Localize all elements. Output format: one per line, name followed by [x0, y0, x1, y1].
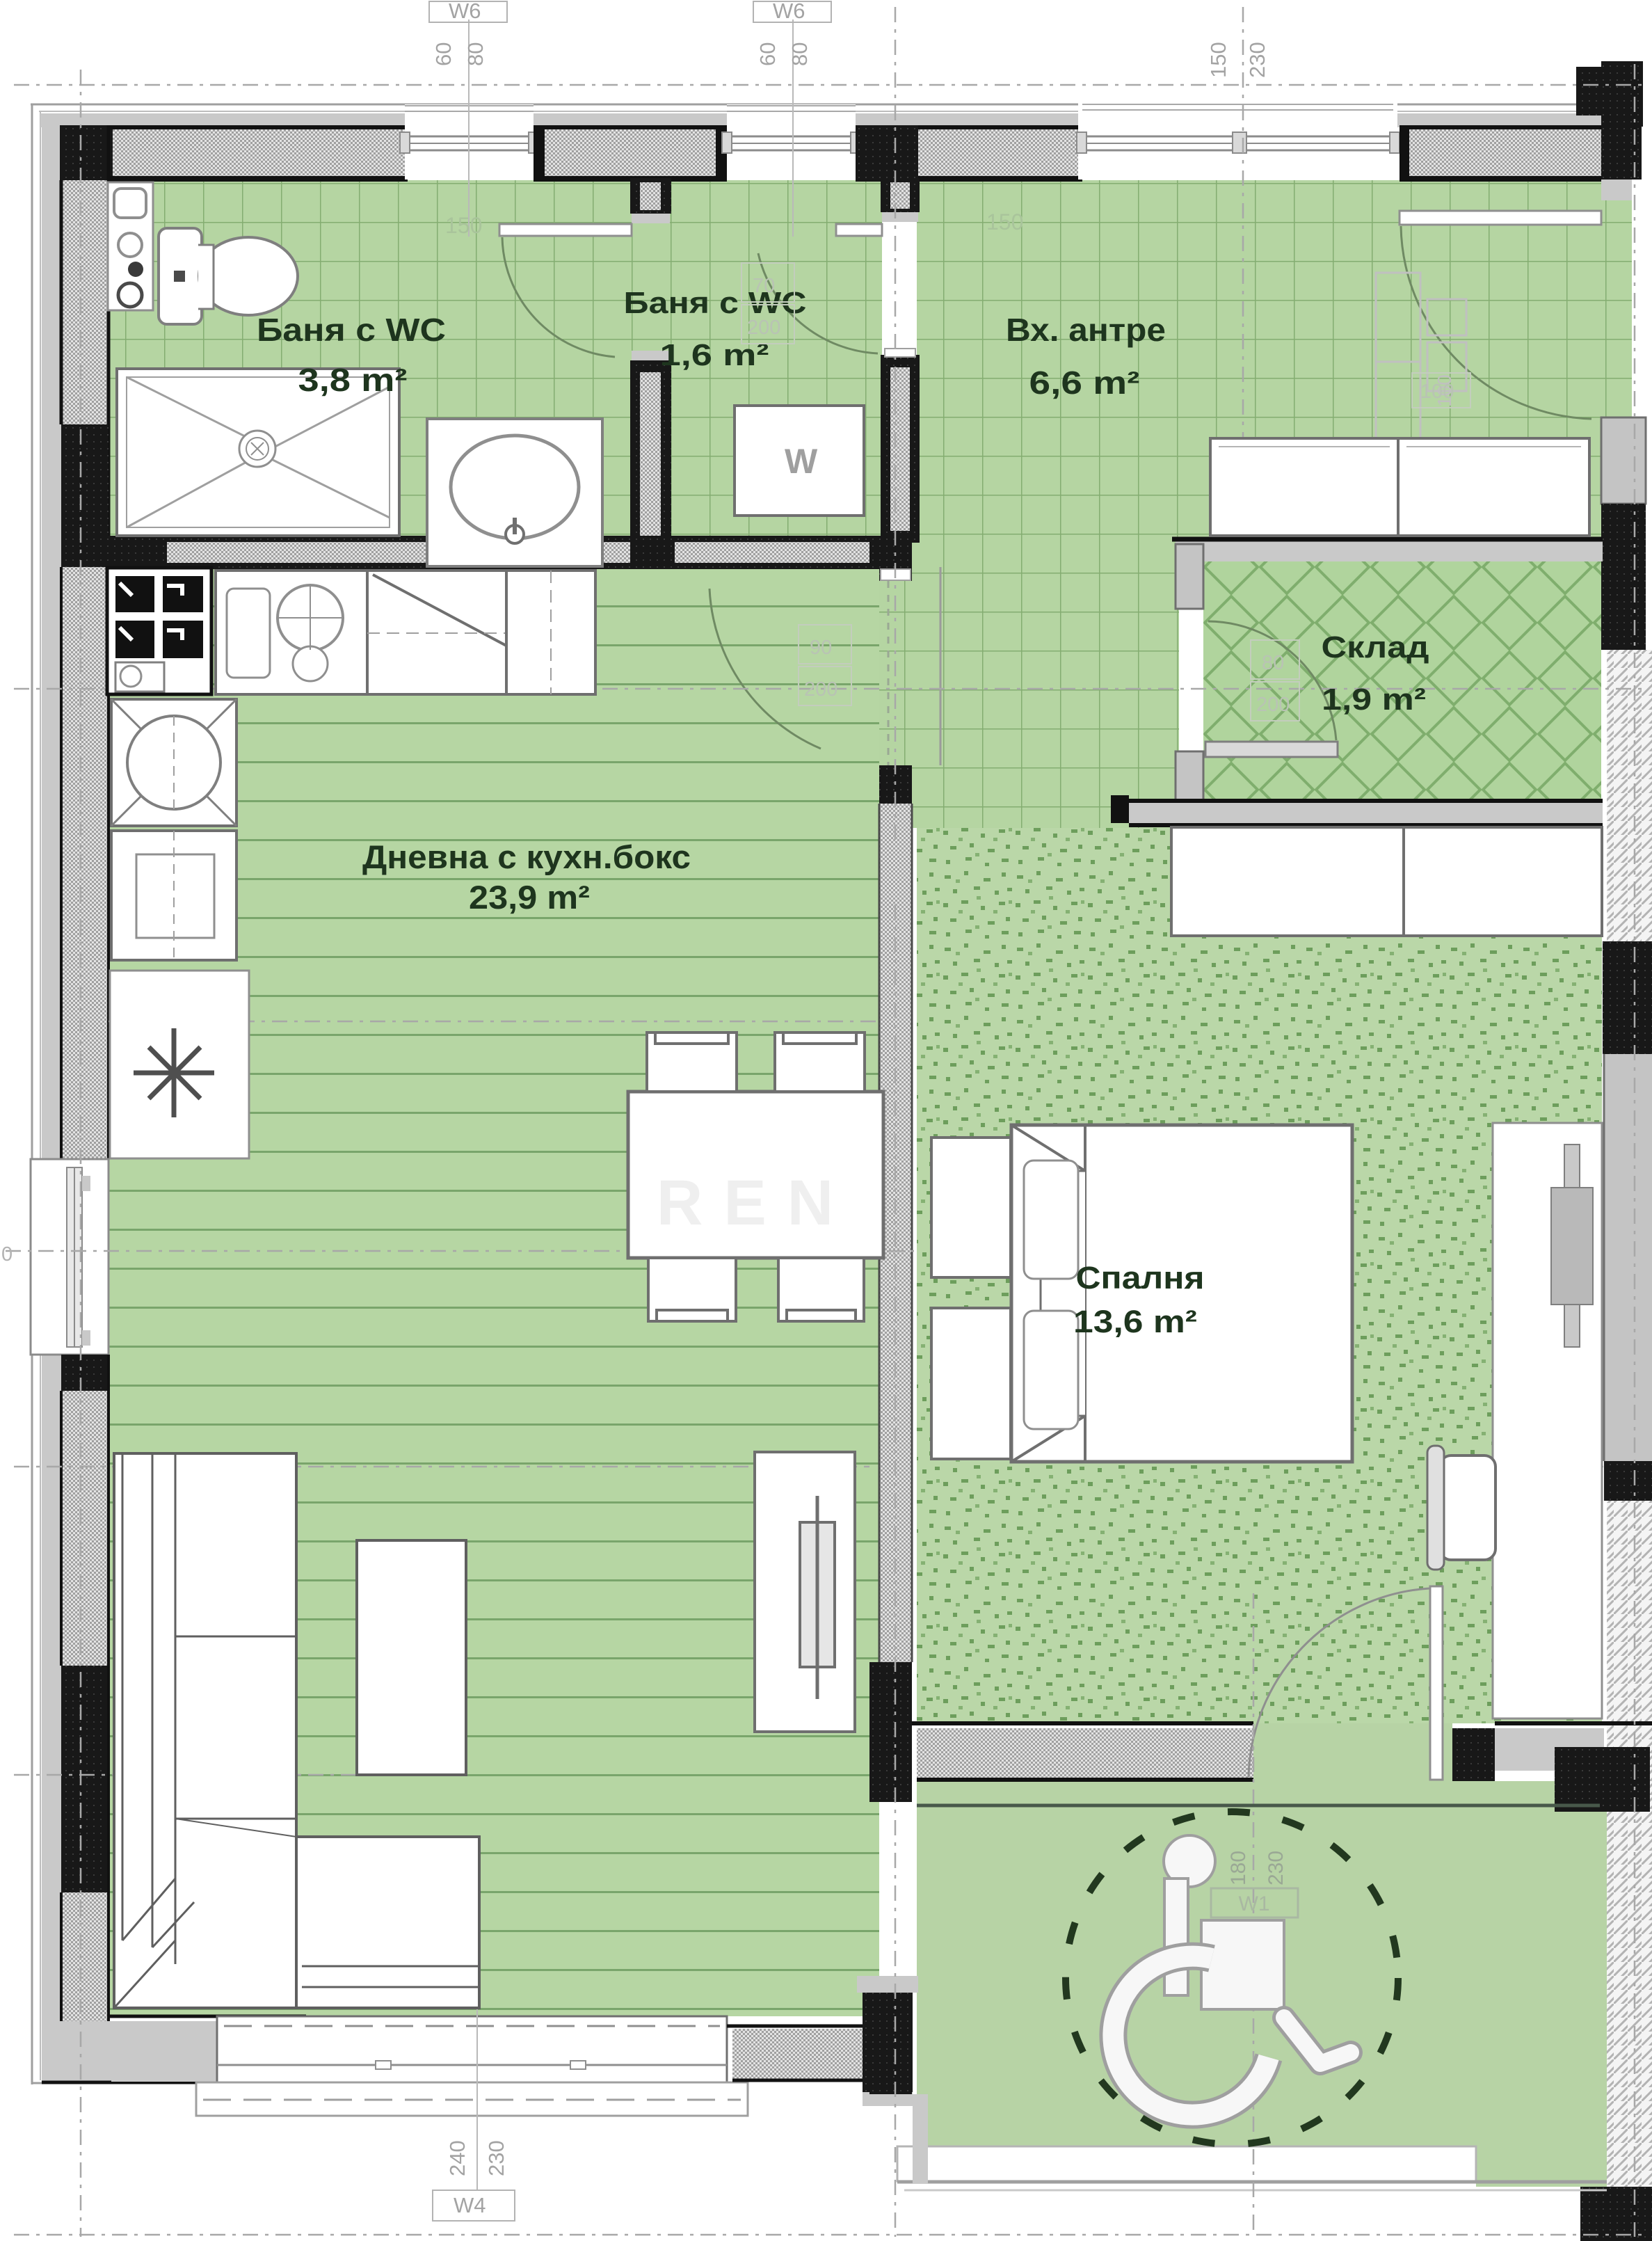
- svg-text:60: 60: [755, 42, 780, 66]
- svg-text:1,9 m²: 1,9 m²: [1322, 683, 1426, 717]
- svg-text:90: 90: [810, 637, 832, 659]
- svg-text:W1: W1: [1239, 1892, 1270, 1915]
- svg-text:0: 0: [1, 1243, 13, 1266]
- svg-text:23,9 m²: 23,9 m²: [469, 879, 590, 916]
- svg-text:6,6 m²: 6,6 m²: [1029, 365, 1140, 401]
- svg-text:100: 100: [1420, 381, 1454, 403]
- svg-text:200: 200: [1256, 694, 1290, 716]
- svg-text:180: 180: [1227, 1851, 1250, 1885]
- svg-text:230: 230: [1245, 42, 1269, 78]
- svg-text:REN: REN: [657, 1167, 854, 1238]
- svg-text:80: 80: [1262, 652, 1284, 674]
- svg-text:W6: W6: [773, 0, 805, 23]
- svg-text:13,6 m²: 13,6 m²: [1073, 1304, 1197, 1339]
- svg-text:Баня с WC: Баня с WC: [257, 312, 446, 348]
- svg-text:200: 200: [747, 317, 780, 339]
- svg-text:150: 150: [1206, 42, 1230, 78]
- svg-text:Склад: Склад: [1322, 630, 1429, 664]
- svg-text:3,8 m²: 3,8 m²: [298, 362, 408, 398]
- svg-text:80: 80: [463, 42, 488, 66]
- svg-text:200: 200: [804, 678, 837, 701]
- svg-text:Дневна с кухн.бокс: Дневна с кухн.бокс: [362, 838, 691, 875]
- svg-text:230: 230: [484, 2140, 508, 2176]
- svg-text:Спалня: Спалня: [1076, 1260, 1205, 1295]
- svg-text:150: 150: [986, 209, 1023, 234]
- svg-text:W: W: [785, 442, 818, 481]
- svg-text:70: 70: [753, 275, 775, 297]
- svg-text:W4: W4: [454, 2193, 486, 2217]
- svg-text:60: 60: [431, 42, 456, 66]
- svg-text:Баня с WC: Баня с WC: [624, 286, 807, 320]
- svg-text:W6: W6: [449, 0, 481, 23]
- svg-text:Вх. антре: Вх. антре: [1006, 312, 1166, 348]
- svg-text:230: 230: [1265, 1851, 1288, 1885]
- svg-text:150: 150: [445, 213, 482, 238]
- svg-text:80: 80: [787, 42, 812, 66]
- svg-text:240: 240: [445, 2140, 470, 2176]
